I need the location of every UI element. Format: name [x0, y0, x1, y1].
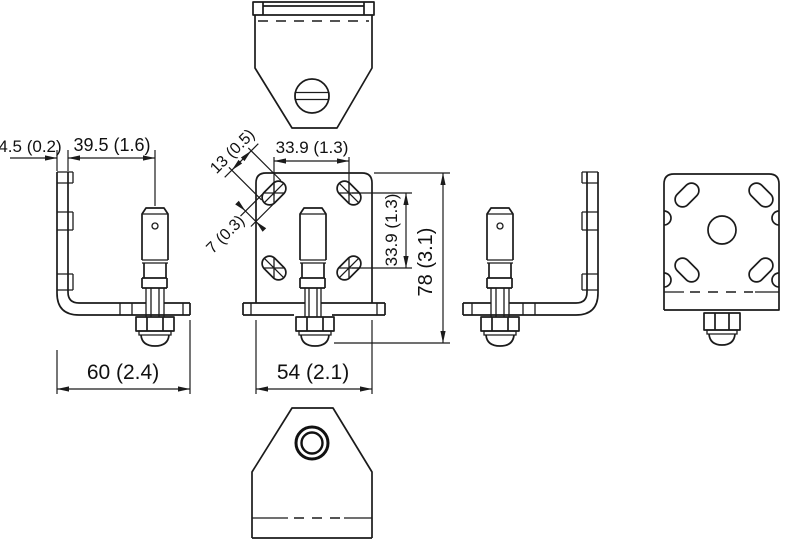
top-view [253, 2, 374, 128]
sensor-dome [709, 334, 735, 345]
sensor-barrel [300, 208, 326, 260]
arrowhead [403, 193, 408, 205]
sensor-joint-lines [142, 214, 168, 263]
dim-base-depth: 60 (2.4) [87, 361, 159, 384]
bracket-outer-profile [463, 172, 598, 315]
arrowhead [256, 386, 268, 391]
plate-edge-tabs [582, 172, 598, 290]
hex-nut [296, 317, 334, 331]
sensor-stem [491, 288, 509, 317]
slot-bottom-left [259, 253, 289, 283]
sensor-dome [301, 335, 329, 346]
nut-ring-inner [302, 433, 323, 454]
washer [299, 331, 331, 335]
arrowhead [256, 222, 266, 232]
sensor-dome [486, 335, 514, 346]
slot-cross [263, 257, 285, 279]
left-side-view: 4.5 (0.2) 39.5 (1.6) 60 (2.4) [0, 135, 190, 394]
drawing-canvas: 4.5 (0.2) 39.5 (1.6) 60 (2.4) [0, 0, 785, 541]
arrowhead [178, 386, 190, 391]
bracket-inner-profile [68, 172, 190, 315]
front-flange [243, 303, 385, 315]
plate-edge-tabs [57, 172, 73, 290]
back-view [664, 174, 779, 345]
front-view: 33.9 (1.3) 33.9 (1.3) 78 (3.1) 54 (2.1) … [203, 126, 450, 394]
bracket-inner-profile [463, 172, 587, 315]
mounting-bracket-dimension-drawing: 4.5 (0.2) 39.5 (1.6) 60 (2.4) [0, 0, 785, 541]
screw-head [295, 79, 329, 113]
top-dim-lines [10, 150, 155, 206]
sensor-stem [146, 288, 164, 317]
dim-sensor-offset: 39.5 (1.6) [73, 135, 150, 155]
dim-slot-width: 7 (0.3) [203, 212, 248, 257]
hex-nut [704, 313, 740, 330]
sensor-hole [152, 223, 158, 229]
center-hole [708, 216, 736, 244]
dim-flange-thickness: 4.5 (0.2) [0, 137, 62, 156]
flange-tab-marks [251, 303, 377, 315]
sensor-hole [497, 223, 503, 229]
sensor-dome [141, 335, 169, 346]
bracket-outer-profile [57, 172, 190, 315]
sensor-barrel [487, 208, 513, 260]
dim-slot-pitch-vertical: 33.9 (1.3) [382, 194, 401, 267]
hex-nut [481, 317, 519, 331]
bottom-view [252, 408, 372, 538]
arrowhead [274, 158, 286, 163]
arrowhead [235, 201, 245, 211]
washer [484, 331, 516, 335]
arrowhead [68, 155, 80, 160]
sensor-joint-lines [487, 214, 513, 263]
dim-plate-width: 54 (2.1) [277, 361, 349, 384]
arrowhead [440, 331, 445, 343]
washer [139, 331, 171, 335]
washer [707, 330, 737, 334]
arrowhead [45, 155, 57, 160]
right-side-view [463, 172, 598, 346]
arrowhead [403, 256, 408, 268]
arrowhead [360, 386, 372, 391]
dim-slot-pitch-horizontal: 33.9 (1.3) [276, 138, 349, 157]
arrowhead [57, 386, 69, 391]
top-flange [253, 2, 374, 15]
slot-outline [672, 180, 702, 210]
slot-outline [746, 180, 776, 210]
arrowhead [337, 158, 349, 163]
sensor-shoulder [142, 263, 167, 288]
sensor-stem [305, 288, 321, 317]
back-plate [664, 174, 779, 310]
sensor-barrel [142, 208, 168, 260]
sensor-shoulder [300, 263, 325, 288]
arrowhead [440, 173, 445, 185]
slot-outline [672, 255, 702, 285]
arrowhead [143, 155, 155, 160]
hex-nut [136, 317, 174, 331]
screw-slot [295, 93, 329, 100]
sensor-shoulder [487, 263, 512, 288]
sensor-joint-lines [300, 214, 326, 263]
dim-overall-height: 78 (3.1) [415, 228, 437, 297]
top-body-outline [255, 15, 372, 128]
